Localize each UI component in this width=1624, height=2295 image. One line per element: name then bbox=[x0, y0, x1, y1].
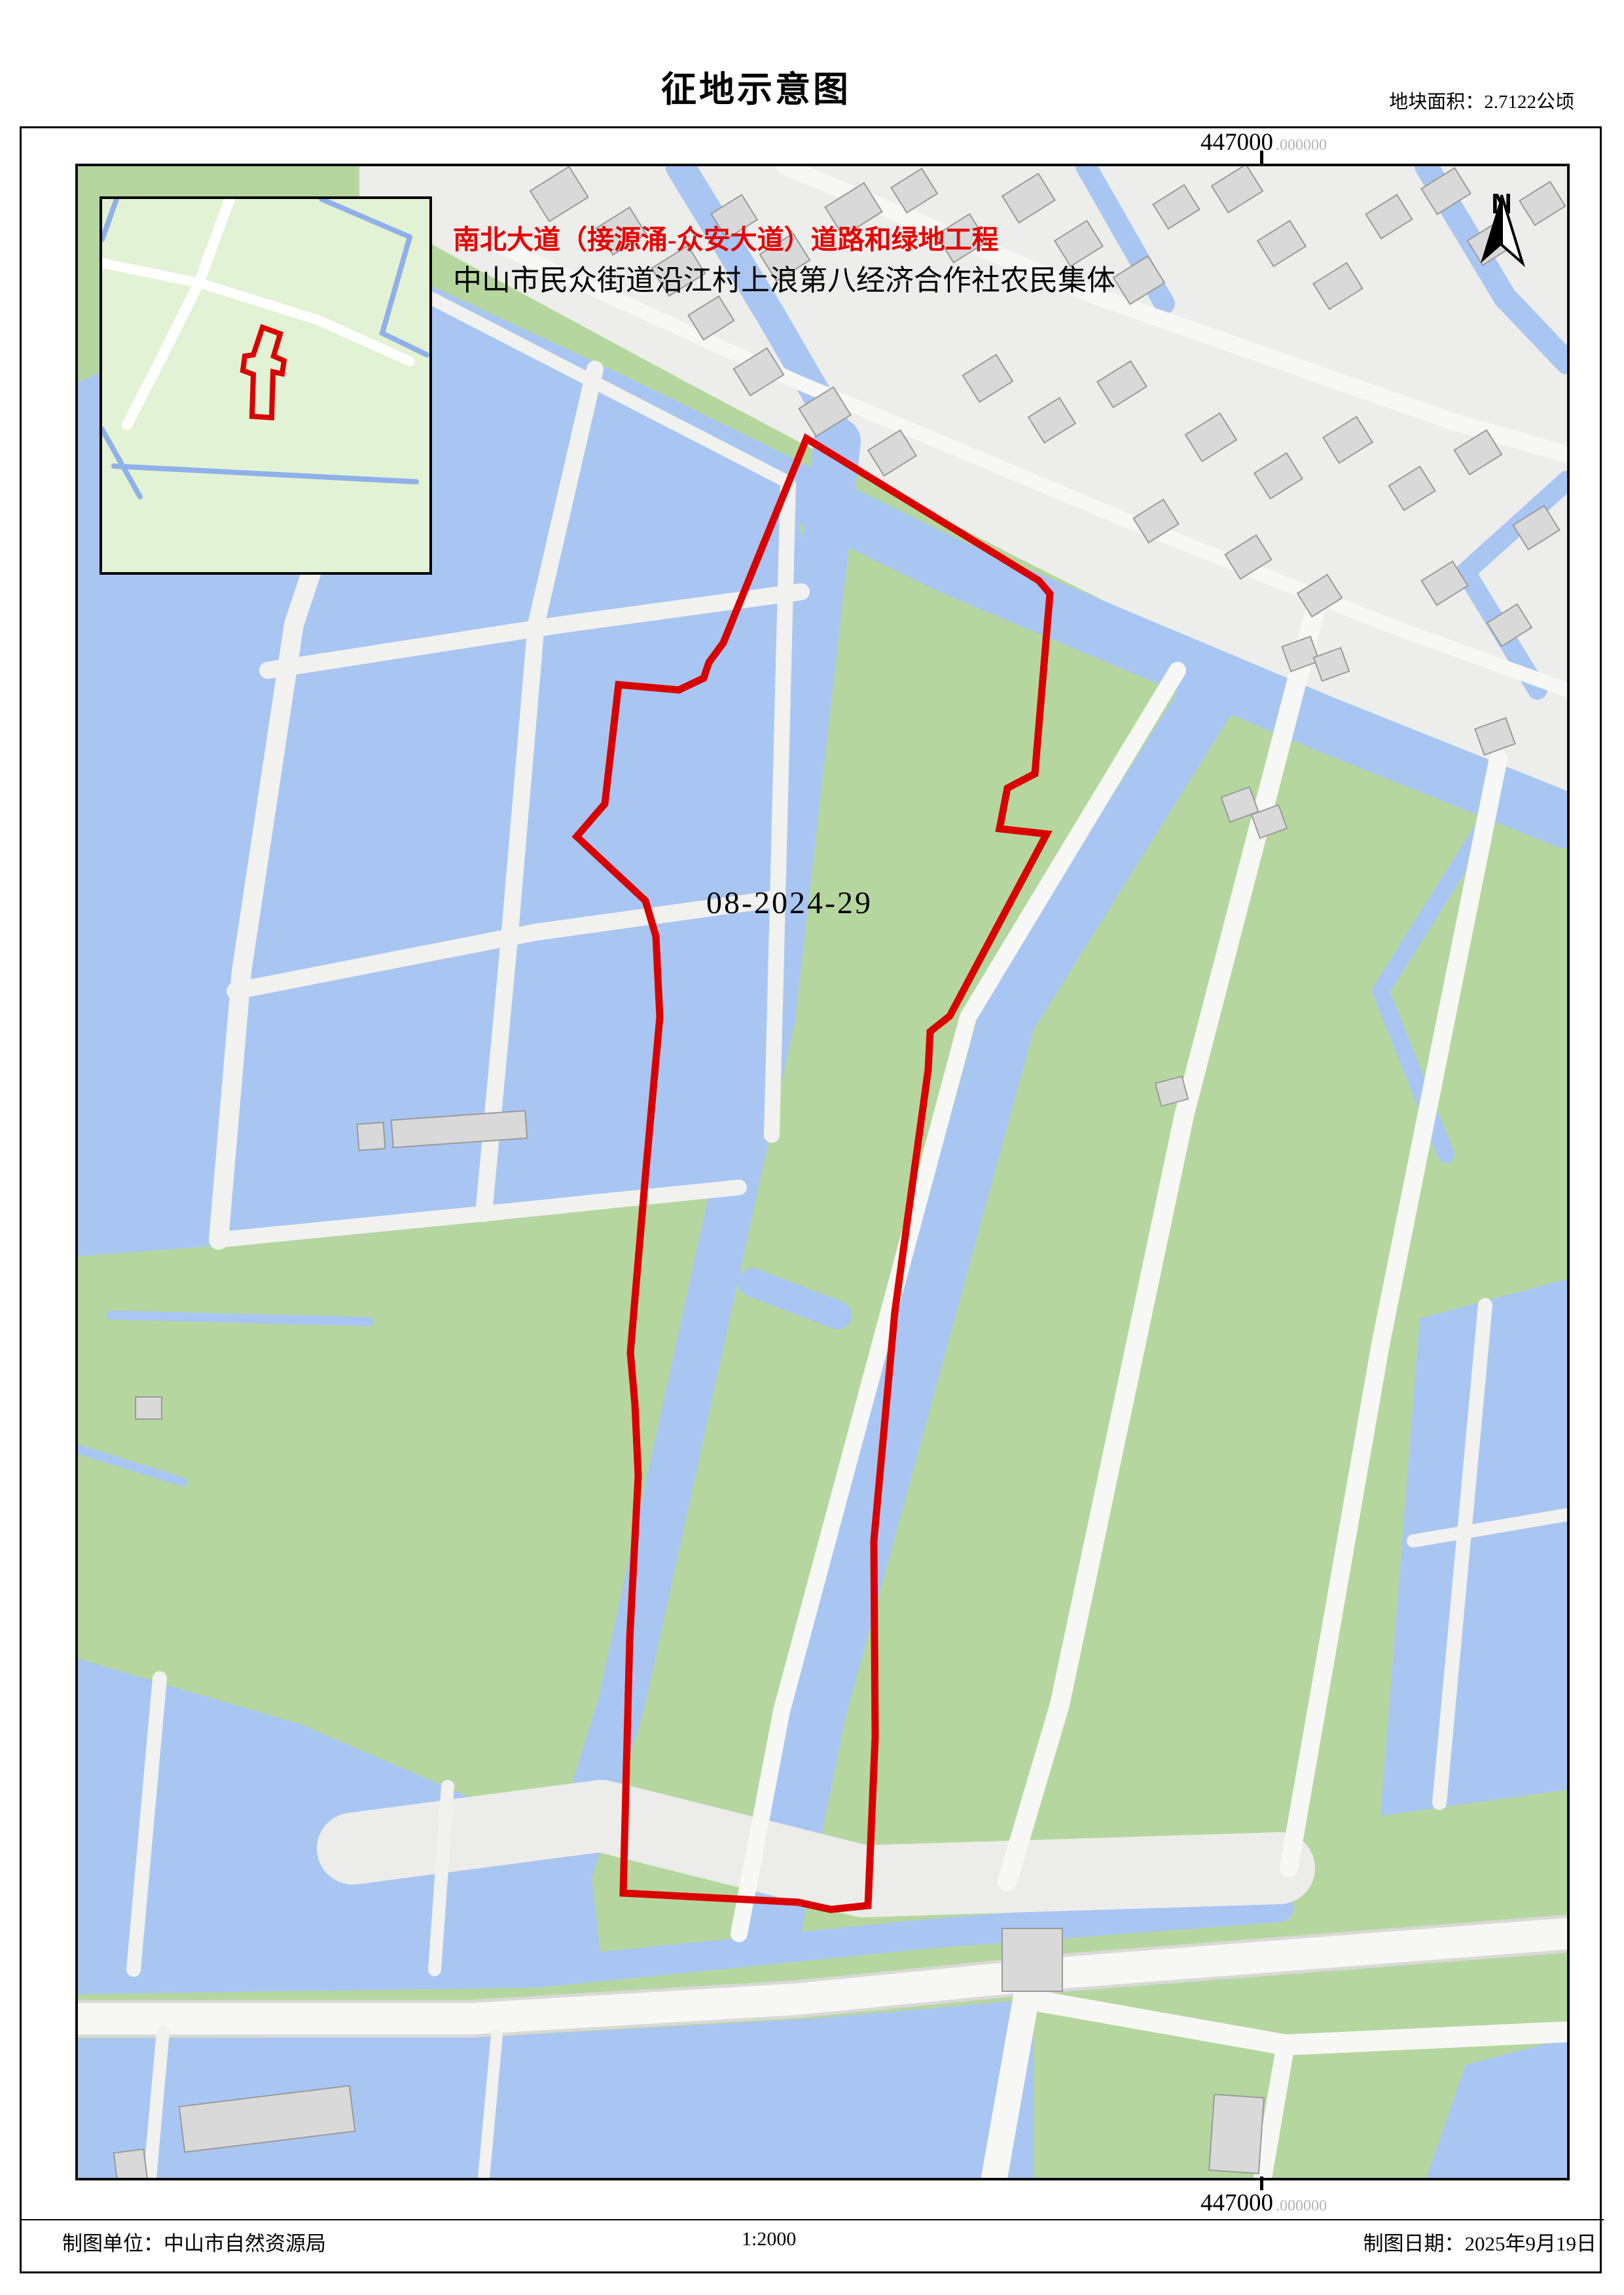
ditch-left-1 bbox=[111, 1315, 369, 1322]
map-scale: 1:2000 bbox=[742, 2228, 796, 2250]
grid-coordinate-bottom: 447000 .000000 bbox=[1200, 2189, 1327, 2217]
footer-divider bbox=[20, 2219, 1604, 2220]
grid-tick-top bbox=[1260, 151, 1263, 164]
north-arrow-icon bbox=[1472, 190, 1531, 268]
map-sheet: { "page": { "title": "征地示意图", "area_note… bbox=[0, 0, 1624, 2295]
north-arrow: N bbox=[1472, 190, 1531, 219]
inset-map-canvas bbox=[102, 199, 429, 572]
grid-coordinate-bottom-value: 447000 bbox=[1200, 2189, 1273, 2217]
map-maker: 制图单位：中山市自然资源局 bbox=[62, 2227, 326, 2256]
grid-tick-bottom bbox=[1260, 2177, 1263, 2190]
parcel-id-label: 08-2024-29 bbox=[706, 885, 873, 921]
grid-coordinate-bottom-decimal: .000000 bbox=[1276, 2197, 1327, 2215]
map-canvas: 南北大道（接源涌-众安大道）道路和绿地工程 中山市民众街道沿江村上浪第八经济合作… bbox=[75, 164, 1570, 2180]
inset-locator-map bbox=[99, 196, 432, 575]
grid-coordinate-top-decimal: .000000 bbox=[1276, 137, 1327, 154]
parcel-area-note: 地块面积：2.7122公顷 bbox=[1389, 86, 1574, 114]
page-title: 征地示意图 bbox=[0, 60, 1512, 112]
grid-coordinate-top: 447000 .000000 bbox=[1200, 128, 1327, 156]
land-owner-label: 中山市民众街道沿江村上浪第八经济合作社农民集体 bbox=[453, 257, 1115, 298]
map-date: 制图日期：2025年9月19日 bbox=[1363, 2227, 1597, 2256]
project-name-label: 南北大道（接源涌-众安大道）道路和绿地工程 bbox=[453, 217, 999, 257]
